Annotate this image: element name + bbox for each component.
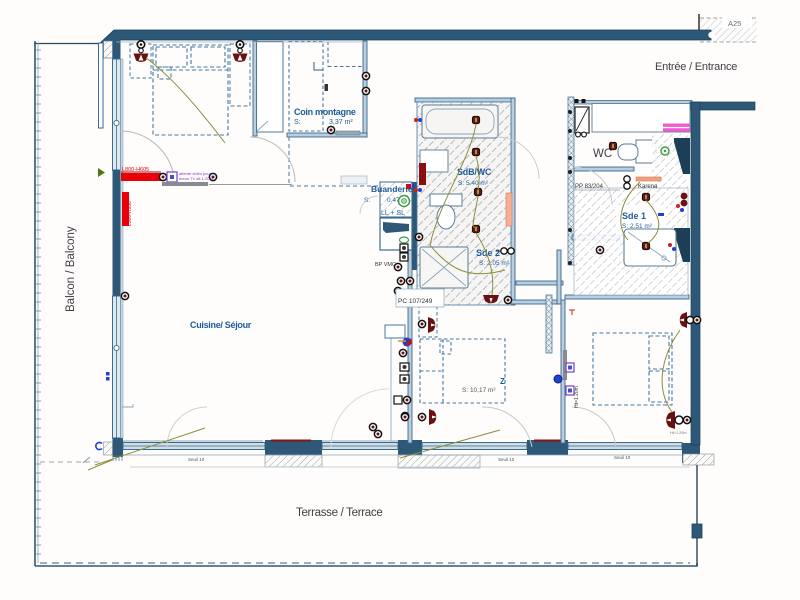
svg-text:Terrasse / Terrace: Terrasse / Terrace	[296, 507, 382, 519]
svg-text:Cuisine/ Séjour: Cuisine/ Séjour	[190, 320, 252, 330]
svg-text:Sde 1: Sde 1	[622, 211, 646, 221]
svg-text:Seuil 10: Seuil 10	[188, 457, 205, 462]
svg-text:Ht=1.20m: Ht=1.20m	[574, 386, 580, 408]
svg-text:Seuil 10: Seuil 10	[614, 455, 631, 460]
svg-text:A25: A25	[728, 19, 741, 28]
svg-text:LL + SL: LL + SL	[381, 210, 405, 217]
svg-text:PC 107/249: PC 107/249	[398, 298, 433, 305]
svg-text:écran TV alt 1.20m: écran TV alt 1.20m	[179, 176, 213, 181]
svg-text:S: 5.40 m²: S: 5.40 m²	[458, 180, 489, 187]
svg-text:PP 83/204: PP 83/204	[575, 184, 604, 190]
svg-text:S: 2.05 m²: S: 2.05 m²	[479, 260, 510, 267]
svg-text:Seuil 10: Seuil 10	[498, 457, 515, 462]
svg-text:Z: Z	[500, 377, 505, 386]
svg-text:L500-H950: L500-H950	[127, 201, 133, 226]
svg-text:S: 10,17 m²: S: 10,17 m²	[462, 387, 496, 394]
svg-text:WC: WC	[593, 148, 612, 160]
svg-text:SdB/WC: SdB/WC	[457, 167, 492, 177]
svg-text:Balcon / Balcony: Balcon / Balcony	[65, 226, 77, 312]
svg-text:Coin montagne: Coin montagne	[294, 107, 356, 117]
svg-text:Ht=1.20m: Ht=1.20m	[670, 431, 687, 435]
svg-text:Entrée / Entrance: Entrée / Entrance	[655, 61, 737, 73]
svg-text:S:: S:	[294, 119, 301, 126]
svg-text:Karena: Karena	[638, 184, 658, 190]
svg-text:BP VMC: BP VMC	[375, 262, 396, 268]
svg-text:3,37 m²: 3,37 m²	[329, 119, 353, 126]
